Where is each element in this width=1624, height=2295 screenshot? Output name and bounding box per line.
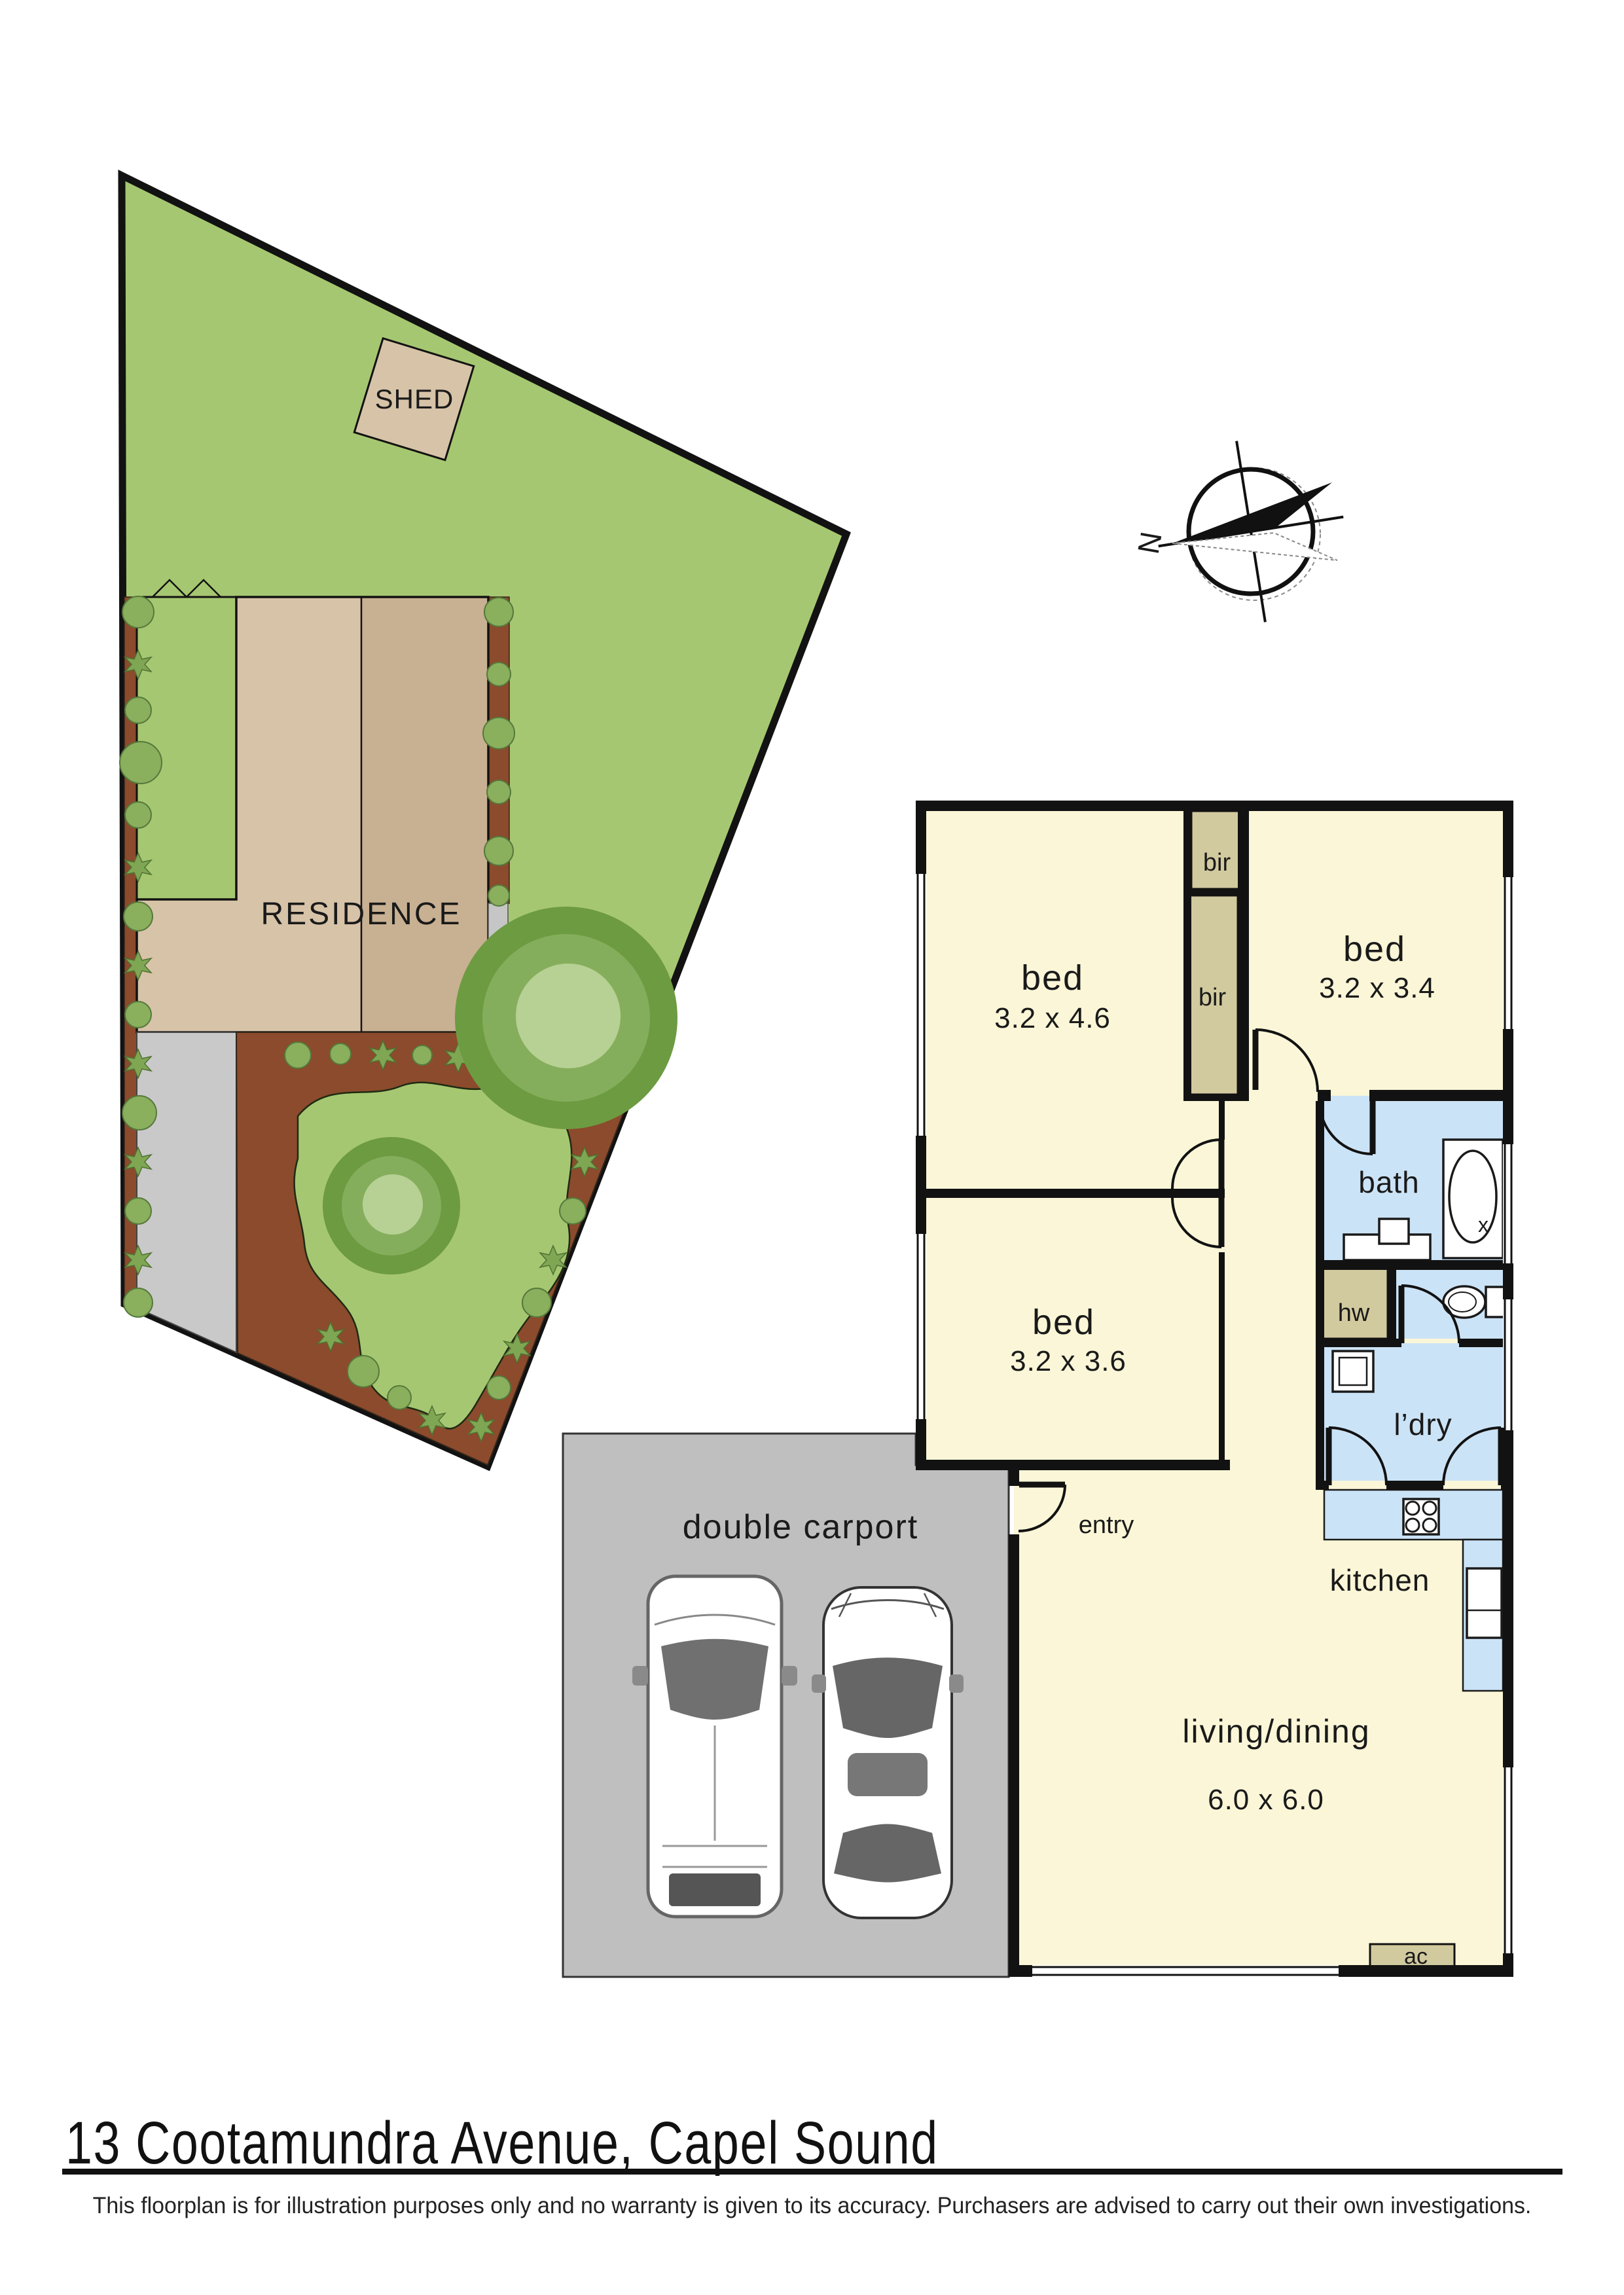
window-bed2 [1503,877,1513,1029]
residence-label: RESIDENCE [261,897,461,931]
footer-divider [62,2169,1562,2175]
window-kitchen [1503,1767,1513,1953]
toilet [1443,1286,1504,1318]
bir2-label: bir [1199,984,1227,1011]
window-bath [1503,1144,1513,1263]
car-suv [632,1576,797,1917]
carport-label: double carport [683,1508,918,1546]
bath-cross-label: x [1478,1213,1489,1237]
compass-north-label: N [1131,529,1168,556]
bed1-label: bed [1021,958,1084,998]
stove [1403,1499,1439,1534]
bed2-label: bed [1343,930,1406,969]
entry-label: entry [1079,1511,1134,1539]
site-plan: SHED RESIDENCE [120,175,846,1466]
window-living [1032,1965,1339,1977]
car-sedan [812,1587,964,1918]
washing-machine [1333,1351,1373,1392]
tree-large [455,907,677,1129]
hw-label: hw [1338,1299,1370,1327]
living-label: living/dining [1182,1713,1370,1750]
compass: N [1131,426,1358,636]
ac-label: ac [1404,1944,1428,1969]
laundry-label: l’dry [1394,1407,1452,1441]
bed2-dims: 3.2 x 3.4 [1319,972,1435,1004]
property-address: 13 Cootamundra Avenue, Capel Sound [65,2109,939,2178]
bathtub [1443,1140,1503,1258]
window-bed3 [916,1234,926,1419]
tree-small [323,1137,460,1274]
kitchen-sink [1467,1568,1502,1638]
window-bed1 [916,874,926,1136]
bed3-dims: 3.2 x 3.6 [1010,1345,1127,1377]
plan-canvas: SHED RESIDENCE N [0,0,1624,2295]
shed-label: SHED [375,384,454,414]
bir1-label: bir [1203,849,1231,876]
bed3-label: bed [1032,1303,1095,1342]
living-dims: 6.0 x 6.0 [1208,1784,1324,1816]
bed1-dims: 3.2 x 4.6 [994,1002,1111,1034]
floorplan-page: SHED RESIDENCE N [0,0,1624,2295]
bath-label: bath [1358,1165,1420,1199]
disclaimer-text: This floorplan is for illustration purpo… [24,2193,1600,2219]
kitchen-label: kitchen [1330,1563,1430,1597]
window-laundry [1503,1299,1513,1430]
